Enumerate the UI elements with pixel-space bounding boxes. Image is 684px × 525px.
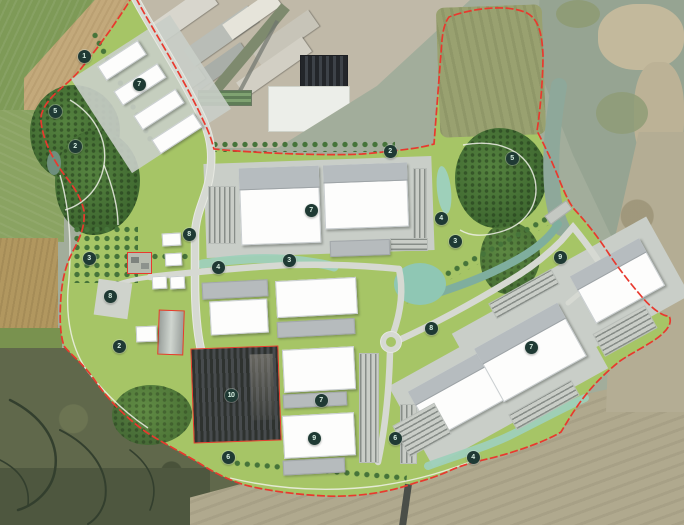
plan-marker-2: 2 (69, 140, 82, 153)
plan-marker-9: 9 (308, 432, 321, 445)
plan-marker-7: 7 (305, 204, 318, 217)
plan-marker-9: 9 (554, 251, 567, 264)
plan-marker-1: 1 (78, 50, 91, 63)
plan-marker-4: 4 (212, 261, 225, 274)
plan-marker-4: 4 (467, 451, 480, 464)
plan-marker-7: 7 (133, 78, 146, 91)
plan-marker-10: 10 (225, 389, 238, 402)
plan-marker-5: 5 (49, 105, 62, 118)
plan-marker-2: 2 (384, 145, 397, 158)
plan-marker-2: 2 (113, 340, 126, 353)
plan-marker-3: 3 (449, 235, 462, 248)
plan-marker-7: 7 (525, 341, 538, 354)
plan-marker-8: 8 (425, 322, 438, 335)
plan-markers-layer: 1752257483339488271079664 (0, 0, 684, 525)
plan-marker-4: 4 (435, 212, 448, 225)
plan-marker-3: 3 (283, 254, 296, 267)
plan-marker-3: 3 (83, 252, 96, 265)
plan-marker-6: 6 (222, 451, 235, 464)
plan-marker-8: 8 (104, 290, 117, 303)
plan-marker-6: 6 (389, 432, 402, 445)
plan-marker-5: 5 (506, 152, 519, 165)
plan-marker-8: 8 (183, 228, 196, 241)
masterplan-aerial-map: 1752257483339488271079664 (0, 0, 684, 525)
plan-marker-7: 7 (315, 394, 328, 407)
